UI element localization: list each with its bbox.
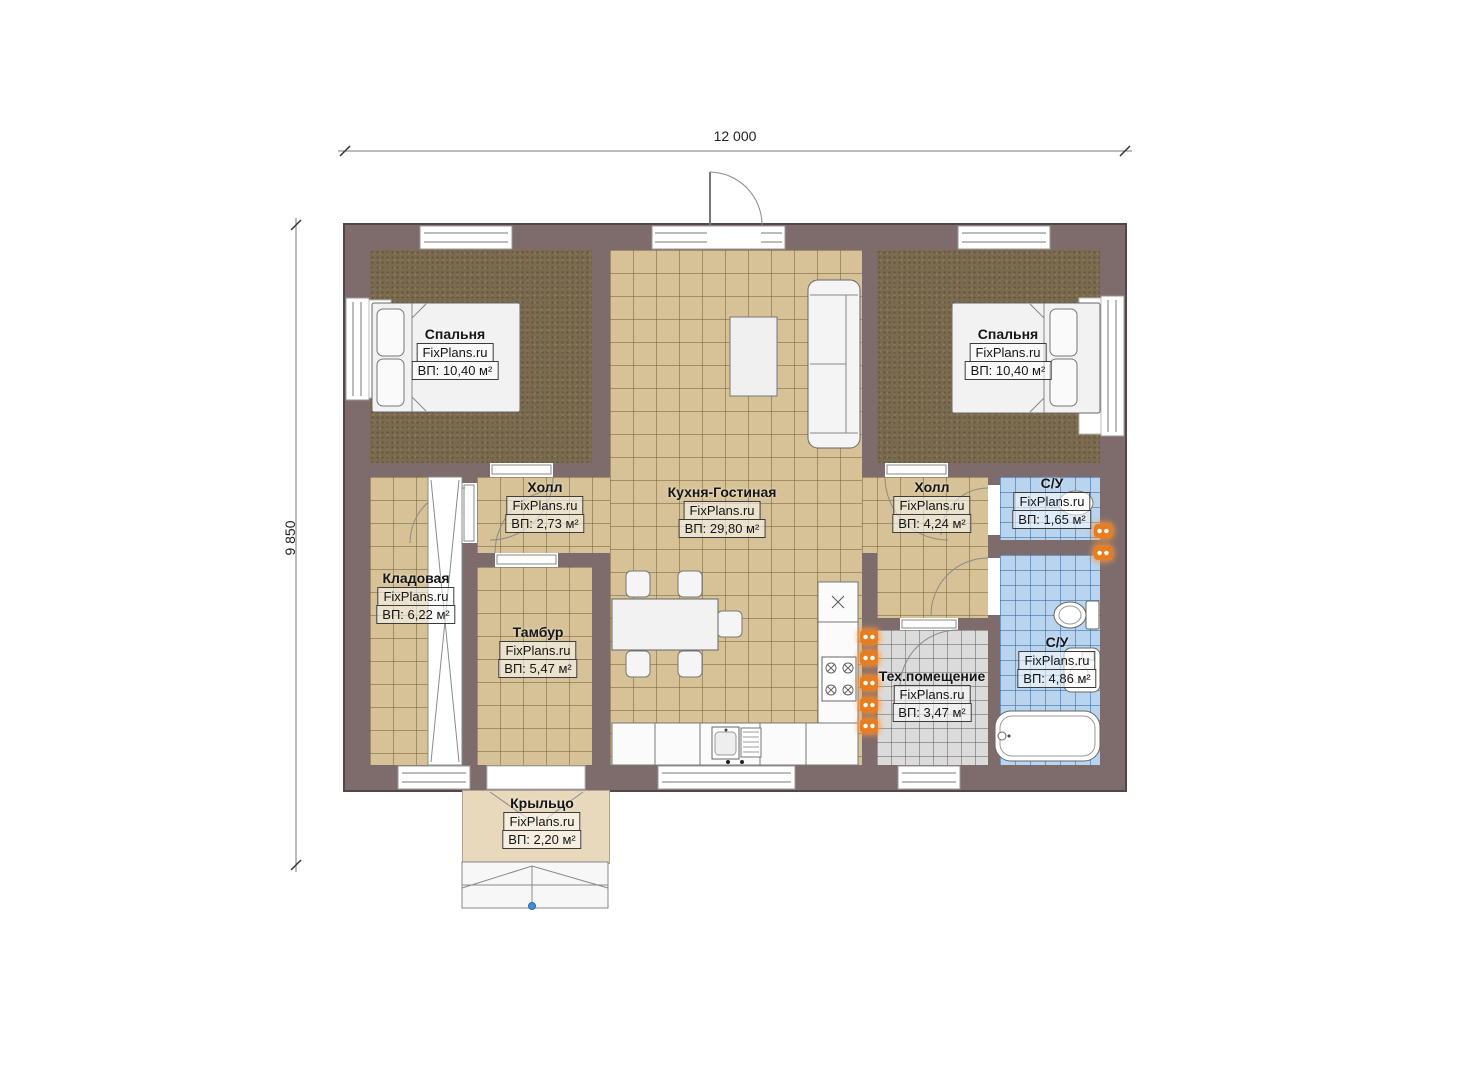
watermark-label: FixPlans.ru	[499, 641, 576, 660]
room-name: С/У	[1046, 634, 1069, 650]
room-label-hall-left: Холл FixPlans.ru ВП: 2,73 м²	[505, 479, 584, 533]
watermark-label: FixPlans.ru	[893, 685, 970, 704]
hall-kitchen-passage	[862, 477, 877, 553]
radiator-icon	[860, 651, 878, 665]
room-area: ВП: 3,47 м²	[892, 703, 971, 722]
watermark-label: FixPlans.ru	[1018, 651, 1095, 670]
room-label-tambour: Тамбур FixPlans.ru ВП: 5,47 м²	[498, 624, 577, 678]
room-name: Тех.помещение	[879, 668, 986, 684]
room-area: ВП: 1,65 м²	[1012, 510, 1091, 529]
watermark-label: FixPlans.ru	[377, 587, 454, 606]
room-name: Спальня	[978, 326, 1038, 342]
room-label-bedroom-left: Спальня FixPlans.ru ВП: 10,40 м²	[412, 326, 499, 380]
dimension-height-label: 9 850	[282, 498, 298, 578]
watermark-label: FixPlans.ru	[506, 496, 583, 515]
room-area: ВП: 4,86 м²	[1017, 669, 1096, 688]
room-name: Кладовая	[382, 570, 449, 586]
entry-door	[710, 172, 762, 225]
room-area: ВП: 10,40 м²	[965, 361, 1052, 380]
radiator-icon	[860, 719, 878, 733]
room-area: ВП: 5,47 м²	[498, 659, 577, 678]
room-label-kitchen-living: Кухня-Гостиная FixPlans.ru ВП: 29,80 м²	[668, 484, 777, 538]
room-area: ВП: 6,22 м²	[376, 605, 455, 624]
room-name: Тамбур	[513, 624, 564, 640]
radiator-icon	[860, 630, 878, 644]
room-label-su-bottom: С/У FixPlans.ru ВП: 4,86 м²	[1017, 634, 1096, 688]
watermark-label: FixPlans.ru	[1013, 492, 1090, 511]
radiator-icon	[860, 676, 878, 690]
watermark-label: FixPlans.ru	[503, 812, 580, 831]
room-name: Холл	[527, 479, 562, 495]
room-name: Крыльцо	[510, 795, 574, 811]
room-area: ВП: 4,24 м²	[892, 514, 971, 533]
dimension-width-label: 12 000	[690, 128, 780, 144]
room-name: С/У	[1041, 475, 1064, 491]
room-area: ВП: 29,80 м²	[679, 519, 766, 538]
room-area: ВП: 2,73 м²	[505, 514, 584, 533]
room-area: ВП: 2,20 м²	[502, 830, 581, 849]
watermark-label: FixPlans.ru	[893, 496, 970, 515]
room-label-su-top: С/У FixPlans.ru ВП: 1,65 м²	[1012, 475, 1091, 529]
floor-plan: 12 000 9 850 Спальня FixPlans.ru ВП: 10,…	[0, 0, 1474, 1080]
radiator-icon	[1094, 524, 1112, 538]
porch-steps	[462, 862, 608, 910]
watermark-label: FixPlans.ru	[969, 343, 1046, 362]
watermark-label: FixPlans.ru	[416, 343, 493, 362]
room-label-storage: Кладовая FixPlans.ru ВП: 6,22 м²	[376, 570, 455, 624]
room-area: ВП: 10,40 м²	[412, 361, 499, 380]
room-name: Холл	[914, 479, 949, 495]
room-label-porch: Крыльцо FixPlans.ru ВП: 2,20 м²	[502, 795, 581, 849]
watermark-label: FixPlans.ru	[683, 501, 760, 520]
room-label-hall-right: Холл FixPlans.ru ВП: 4,24 м²	[892, 479, 971, 533]
radiator-icon	[1094, 546, 1112, 560]
room-label-tech: Тех.помещение FixPlans.ru ВП: 3,47 м²	[879, 668, 986, 722]
radiator-icon	[860, 698, 878, 712]
room-name: Кухня-Гостиная	[668, 484, 777, 500]
room-label-bedroom-right: Спальня FixPlans.ru ВП: 10,40 м²	[965, 326, 1052, 380]
room-name: Спальня	[425, 326, 485, 342]
